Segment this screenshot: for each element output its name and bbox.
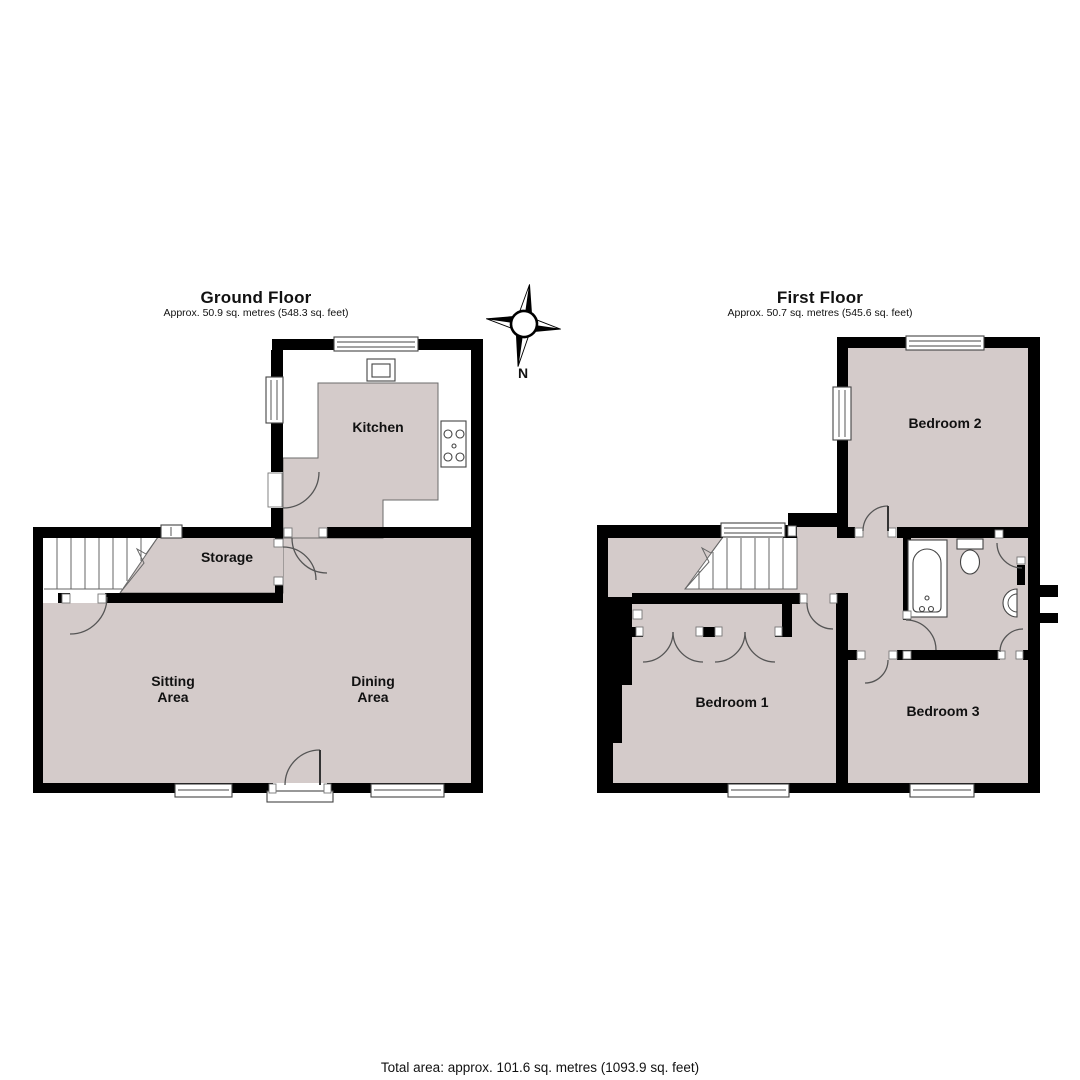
room-label-sitting-1: Sitting bbox=[151, 673, 195, 689]
door-leaf bbox=[268, 473, 282, 507]
ground-floor-areas bbox=[43, 383, 471, 783]
window bbox=[334, 337, 418, 351]
entrance-threshold bbox=[267, 791, 333, 802]
staircase bbox=[44, 538, 141, 589]
room-label-dining-2: Area bbox=[357, 689, 388, 705]
window bbox=[371, 784, 444, 797]
bathtub bbox=[908, 540, 947, 617]
room-label-bedroom3: Bedroom 3 bbox=[906, 703, 979, 719]
side-recess bbox=[1040, 597, 1058, 613]
window bbox=[161, 525, 182, 538]
room-label-bedroom1: Bedroom 1 bbox=[695, 694, 768, 710]
room-label-bedroom2: Bedroom 2 bbox=[908, 415, 981, 431]
floorplan-page: Ground Floor Approx. 50.9 sq. metres (54… bbox=[0, 0, 1080, 1080]
floorplan-drawing: Kitchen Storage Sitting Area Dining Area… bbox=[0, 0, 1080, 1080]
room-label-sitting-2: Area bbox=[157, 689, 188, 705]
room-label-dining-1: Dining bbox=[351, 673, 395, 689]
room-label-kitchen: Kitchen bbox=[352, 419, 403, 435]
window bbox=[721, 523, 785, 537]
window bbox=[910, 784, 974, 797]
window bbox=[906, 336, 984, 350]
ground-floor-plan: Kitchen Storage Sitting Area Dining Area bbox=[33, 337, 483, 802]
window bbox=[833, 387, 851, 440]
first-floor-plan: Bedroom 2 Bedroom 1 Bedroom 3 bbox=[597, 336, 1058, 797]
compass-rose: N bbox=[480, 279, 566, 381]
boiler bbox=[367, 359, 395, 381]
window bbox=[175, 784, 232, 797]
window bbox=[728, 784, 789, 797]
window bbox=[266, 377, 283, 423]
room-label-storage: Storage bbox=[201, 549, 253, 565]
stove bbox=[441, 421, 466, 467]
total-area-label: Total area: approx. 101.6 sq. metres (10… bbox=[0, 1060, 1080, 1075]
north-label: N bbox=[518, 365, 528, 381]
